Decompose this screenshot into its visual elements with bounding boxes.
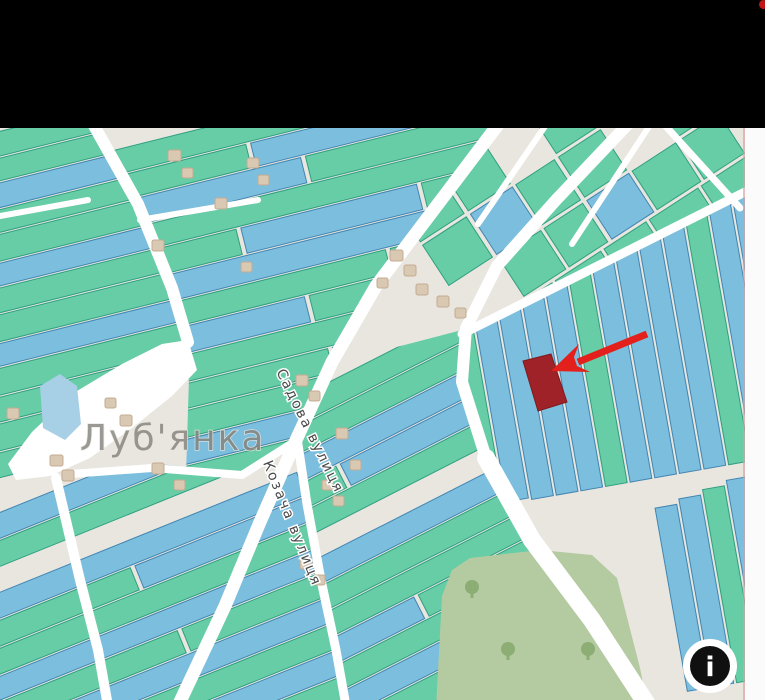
map-edge-line	[743, 128, 745, 700]
right-gutter	[745, 128, 765, 700]
info-button[interactable]: i	[683, 639, 737, 693]
top-bar	[0, 0, 765, 128]
screenshot-root: { "window": { "top_bar": {"color": "#000…	[0, 0, 765, 700]
info-icon-glyph: i	[705, 652, 714, 683]
locality-label: Луб'янка	[80, 418, 265, 459]
map-canvas[interactable]: Луб'янка Садова вулиця Козача вулиця i	[0, 128, 745, 700]
recording-dot-icon	[759, 0, 765, 9]
